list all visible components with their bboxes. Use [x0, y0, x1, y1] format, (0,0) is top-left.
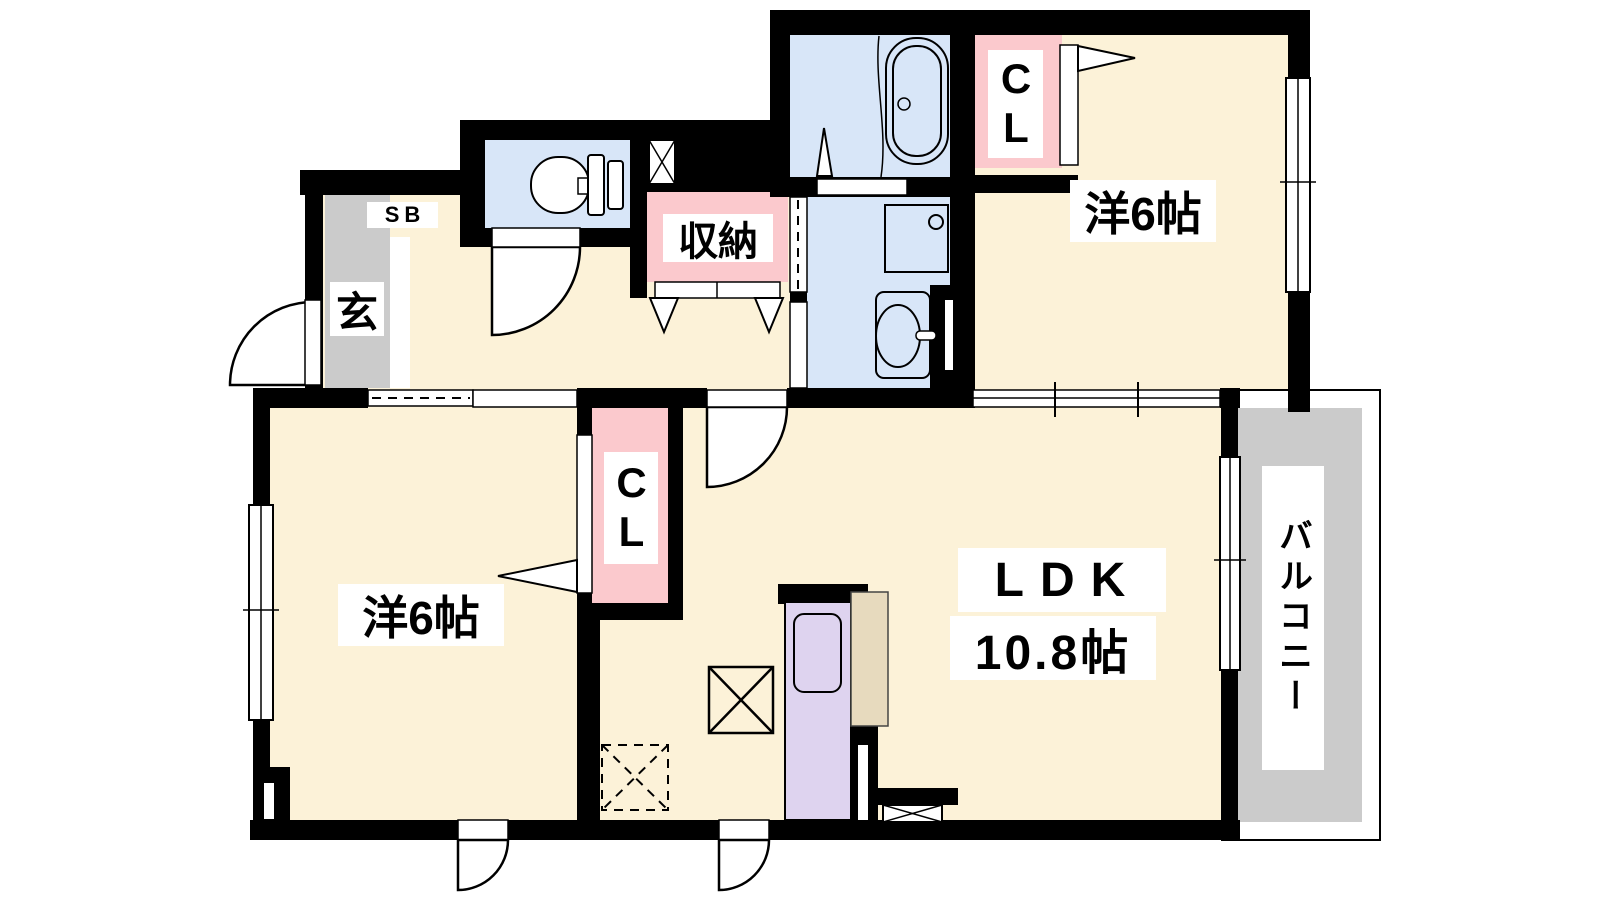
bedroom-top-window: [1280, 78, 1316, 292]
toilet-fixture: [531, 155, 623, 215]
kitchen-counter: [785, 602, 851, 820]
bedroom-left-label: 洋6帖: [338, 584, 504, 646]
closet-top-label: CL: [988, 50, 1043, 158]
ldk-size-label: 10.8帖: [950, 616, 1156, 680]
ldk-label: LDK: [958, 548, 1166, 612]
closet-mid-label: CL: [604, 452, 658, 564]
genkan-step: [390, 237, 410, 388]
entrance-door: [230, 300, 321, 385]
balcony-label: バルコニー: [1262, 466, 1324, 770]
entrance-label: 玄: [330, 282, 384, 336]
washroom-floor: [807, 197, 950, 388]
floor-plan: SB 玄 収納 CL CL 洋6帖 洋6帖 LDK 10.8帖 バルコニー: [0, 0, 1600, 900]
storage-label: 収納: [663, 214, 773, 262]
washroom-folding-door: [790, 197, 807, 388]
floor-plan-canvas: [0, 0, 1600, 900]
ldk-bottom-door: [719, 820, 769, 890]
shoe-box-label: SB: [367, 202, 438, 228]
bottom-x-window: [883, 805, 942, 822]
bedroom-top-label: 洋6帖: [1070, 180, 1216, 242]
bedroom-left-sliding-opening: [368, 390, 577, 407]
bedroom-left-window: [243, 505, 279, 720]
bedroom-left-door: [458, 820, 508, 890]
refrigerator-space: [851, 592, 888, 726]
pipe-shaft: [649, 140, 675, 184]
